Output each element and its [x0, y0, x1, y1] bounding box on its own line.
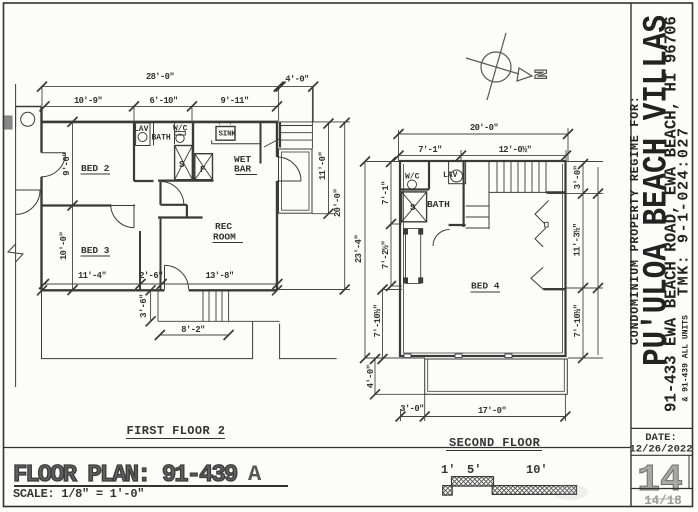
svg-text:17'-0": 17'-0": [478, 406, 506, 416]
svg-text:SCALE: 1/8" = 1'-0": SCALE: 1/8" = 1'-0": [13, 487, 144, 501]
svg-text:9'-11": 9'-11": [220, 96, 248, 106]
svg-text:1': 1': [441, 463, 455, 477]
svg-text:7'-2½": 7'-2½": [381, 241, 391, 269]
svg-text:4'-0": 4'-0": [285, 75, 309, 85]
svg-text:11'-4": 11'-4": [78, 271, 106, 281]
svg-text:A: A: [248, 462, 262, 487]
svg-text:28'-0": 28'-0": [146, 72, 174, 82]
svg-text:7'-10½": 7'-10½": [373, 304, 383, 337]
svg-text:3'-0": 3'-0": [400, 404, 424, 414]
svg-text:BED 3: BED 3: [81, 245, 110, 256]
svg-text:14/18: 14/18: [644, 494, 682, 508]
svg-text:FIRST FLOOR 2: FIRST FLOOR 2: [127, 424, 226, 438]
svg-text:7'-1": 7'-1": [418, 145, 442, 155]
svg-text:S: S: [179, 160, 185, 170]
svg-text:BAR: BAR: [234, 164, 251, 175]
svg-text:SECOND FLOOR: SECOND FLOOR: [449, 436, 541, 450]
svg-text:8'-2": 8'-2": [181, 325, 205, 335]
svg-text:LAV: LAV: [443, 171, 458, 180]
svg-text:DATE:: DATE:: [645, 432, 677, 444]
svg-text:F: F: [200, 165, 205, 175]
svg-text:11'-3½": 11'-3½": [573, 223, 583, 256]
svg-text:W/C: W/C: [405, 173, 420, 182]
svg-text:W/C: W/C: [173, 125, 188, 134]
svg-text:3'-0": 3'-0": [573, 165, 583, 189]
svg-text:LAV: LAV: [134, 125, 149, 134]
svg-text:S: S: [410, 203, 416, 213]
svg-text:10'-9": 10'-9": [74, 96, 102, 106]
svg-text:ROOM: ROOM: [213, 232, 236, 243]
svg-text:5': 5': [467, 463, 481, 477]
svg-text:N: N: [529, 69, 549, 80]
svg-text:9'-6": 9'-6": [62, 152, 72, 176]
svg-text:BED 2: BED 2: [81, 163, 110, 174]
svg-text:12'-0½": 12'-0½": [499, 145, 532, 155]
svg-text:13'-8": 13'-8": [205, 271, 233, 281]
svg-text:6'-10": 6'-10": [149, 96, 177, 106]
svg-text:SINK: SINK: [219, 131, 237, 139]
svg-text:11'-0": 11'-0": [318, 152, 328, 180]
svg-text:10'-0": 10'-0": [59, 232, 69, 260]
svg-text:2'-6": 2'-6": [139, 271, 163, 281]
svg-text:4'-0": 4'-0": [366, 364, 376, 388]
svg-text:REC: REC: [215, 221, 232, 232]
svg-text:BED 4: BED 4: [471, 281, 500, 292]
svg-text:BATH: BATH: [152, 134, 171, 143]
svg-text:3'-6": 3'-6": [139, 294, 149, 318]
svg-text:& 91-439 ALL UNITS: & 91-439 ALL UNITS: [682, 315, 691, 402]
svg-text:FLOOR PLAN: 91-439: FLOOR PLAN: 91-439: [13, 462, 237, 489]
svg-text:7'-1": 7'-1": [381, 181, 391, 205]
svg-text:20'-0": 20'-0": [333, 189, 343, 217]
svg-text:BATH: BATH: [427, 199, 450, 210]
svg-text:10': 10': [526, 463, 548, 477]
svg-text:TMK: 9-1-024:027: TMK: 9-1-024:027: [676, 126, 693, 296]
svg-text:7'-10½": 7'-10½": [573, 304, 583, 337]
svg-text:12/26/2022: 12/26/2022: [629, 444, 692, 456]
svg-text:20'-0": 20'-0": [470, 123, 498, 133]
svg-text:23'-4": 23'-4": [354, 235, 364, 263]
